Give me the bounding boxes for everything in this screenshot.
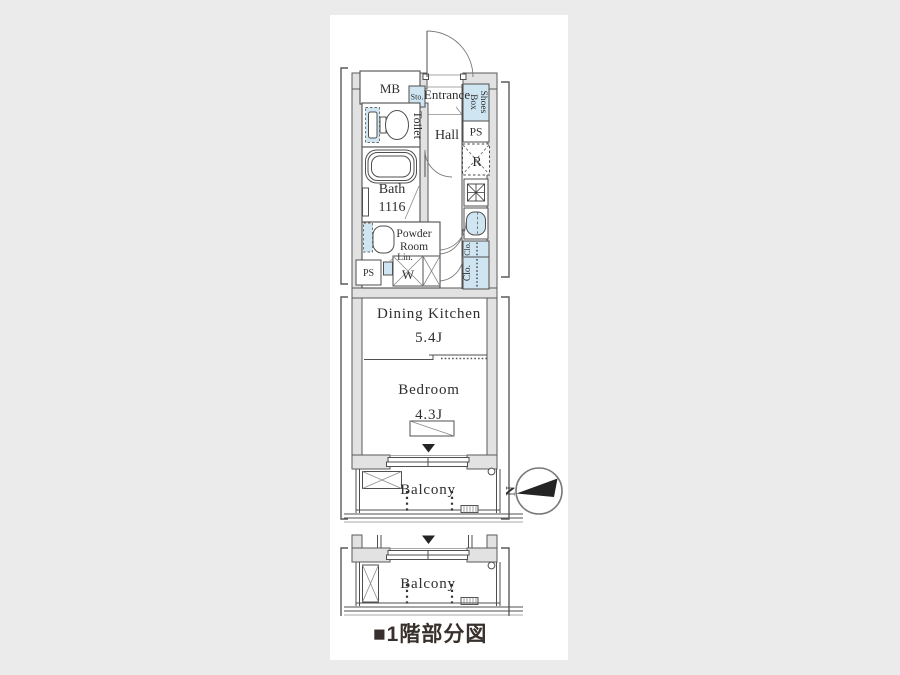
bedroom-label: Bedroom [398,382,459,398]
south-marker-upper [422,444,435,453]
ac-outdoor-unit-lower-icon [363,565,379,602]
hall-label: Hall [435,128,459,143]
entrance-door-icon [427,31,473,77]
powder-room-label-line2: Room [400,241,428,253]
bath-size-label: 1116 [379,200,406,215]
stove-icon [464,179,488,206]
shoes-box-label-line1: Shoes [478,91,488,114]
drain-lower-icon [488,562,495,569]
shoes-box-label-line2: Box [468,94,478,110]
toilet-label: Toilet [411,111,425,139]
bedroom-counter-icon [410,421,454,436]
hall-door-icon [425,150,452,177]
south-marker-lower [422,536,435,545]
dining-kitchen-label: Dining Kitchen [377,306,481,322]
powder-room-label-line1: Powder [396,228,431,240]
compass: N [503,468,563,514]
bedroom-size-label: 4.3J [415,407,443,423]
drain-icon [488,468,495,475]
balcony-lower-label: Balcony [400,576,456,592]
storage-label: Sto. [411,93,424,102]
main-window [387,456,470,467]
sliding-partition [364,355,487,360]
floor-plan-page: N [0,0,900,675]
mb-label: MB [380,81,401,96]
refrigerator-label: R [472,155,482,170]
floor-plan-drawing: N [0,0,900,675]
linen-label: Lin. [397,253,413,263]
balcony-main-label: Balcony [400,482,456,498]
ps-upper-label: PS [470,127,483,139]
ps-lower-label: PS [363,268,374,279]
washbasin-icon [373,226,394,253]
dining-kitchen-size-label: 5.4J [415,330,443,346]
kitchen-sink-icon [464,208,488,239]
bath-label: Bath [379,182,405,197]
caption-floor-plan: ■1階部分図 [373,622,487,646]
bathtub-icon [366,150,417,183]
washer-label: W [402,267,415,282]
ac-outdoor-unit-icon [363,472,402,489]
closet-upper-label: Clo. [463,242,472,256]
compass-north-label: N [503,486,518,496]
closet-lower-label: Clo. [463,265,473,281]
entrance-label: Entrance [424,87,470,102]
lower-unit-section [378,535,473,560]
drain-grate-icon [461,506,478,513]
closet-lower-door-arc [438,256,463,281]
